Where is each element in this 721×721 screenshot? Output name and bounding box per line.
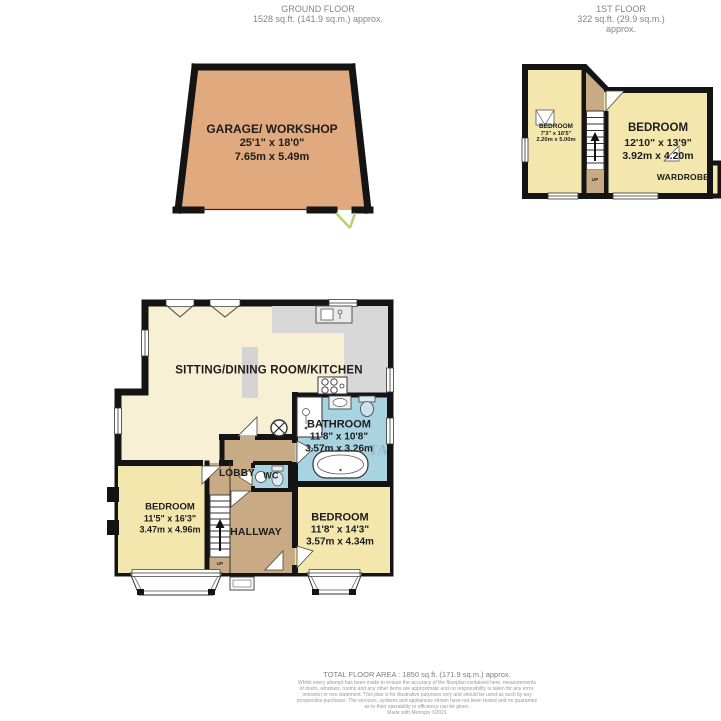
ground-floor-area: 1528 sq.ft. (141.9 sq.m.) approx.	[253, 14, 383, 24]
wardrobe-label: WARDROBE	[657, 173, 709, 182]
kitchen-sink-icon	[316, 306, 352, 323]
up-label-ground-floor: UP	[217, 562, 224, 567]
up-label-first-floor: UP	[592, 178, 599, 183]
room-dims-metric: 3.57m x 3.26m	[305, 445, 373, 455]
disclaimer-credit: Made with Metropix ©2021	[286, 711, 548, 717]
room-name: GARAGE/ WORKSHOP	[206, 123, 337, 135]
room-dims-imperial: 11'8" x 14'3"	[306, 526, 374, 536]
bathroom-sink-icon	[329, 396, 351, 409]
room-name: BEDROOM	[536, 124, 575, 131]
first-floor-title: 1ST FLOOR	[571, 4, 671, 14]
room-name: BEDROOM	[139, 502, 200, 512]
room-dims-metric: 2.20m x 5.00m	[536, 138, 575, 144]
bay-window-right	[307, 570, 362, 596]
ground-floor-title: GROUND FLOOR	[253, 4, 383, 14]
bedroom-small-label: BEDROOM 7'3" x 16'5" 2.20m x 5.00m	[536, 124, 575, 144]
porch-step	[230, 577, 254, 590]
bathtub-icon	[313, 451, 368, 478]
bedroom-right-label: BEDROOM 11'8" x 14'3" 3.57m x 4.34m	[306, 513, 374, 548]
garage-label: GARAGE/ WORKSHOP 25'1" x 18'0" 7.65m x 5…	[206, 123, 337, 163]
disclaimer: Whilst every attempt has been made to en…	[286, 681, 548, 716]
room-dims-imperial: 11'8" x 10'8"	[305, 433, 373, 443]
bedroom-large-label: BEDROOM 12'10" x 13'9" 3.92m x 4.20m	[622, 123, 693, 162]
bay-window-left	[130, 570, 222, 596]
hallway-label: HALLWAY	[230, 527, 282, 538]
lobby-label: LOBBY	[219, 469, 255, 479]
garage-door-swing-icon	[336, 213, 355, 228]
room-dims-metric: 3.57m x 4.34m	[306, 538, 374, 548]
room-dims-metric: 7.65m x 5.49m	[206, 152, 337, 163]
first-floor-area: 322 sq.ft. (29.9 sq.m.) approx.	[571, 14, 671, 34]
room-dims-imperial: 11'5" x 16'3"	[139, 514, 200, 523]
hob-icon	[318, 377, 347, 394]
watermark-text: TA	[368, 443, 388, 460]
room-name: BATHROOM	[305, 420, 373, 431]
total-floor-area: TOTAL FLOOR AREA : 1850 sq.ft. (171.9 sq…	[286, 670, 548, 679]
ceiling-light-icon	[271, 420, 287, 436]
floorplan-page: GROUND FLOOR 1528 sq.ft. (141.9 sq.m.) a…	[0, 0, 721, 721]
room-name: BEDROOM	[622, 123, 693, 135]
room-dims-metric: 3.92m x 4.20m	[622, 151, 693, 162]
room-name: BEDROOM	[306, 513, 374, 524]
room-dims-metric: 3.47m x 4.96m	[139, 525, 200, 534]
ground-floor-header: GROUND FLOOR 1528 sq.ft. (141.9 sq.m.) a…	[253, 4, 383, 24]
wc-label: WC	[263, 472, 278, 481]
room-dims-imperial: 12'10" x 13'9"	[622, 137, 693, 148]
room-dims-imperial: 25'1" x 18'0"	[206, 138, 337, 149]
sitting-room-label: SITTING/DINING ROOM/KITCHEN	[175, 365, 362, 377]
footer: TOTAL FLOOR AREA : 1850 sq.ft. (171.9 sq…	[286, 670, 548, 716]
floorplan-drawing	[0, 0, 721, 721]
toilet-icon	[359, 396, 375, 417]
bedroom-left-label: BEDROOM 11'5" x 16'3" 3.47m x 4.96m	[139, 502, 200, 534]
first-floor-header: 1ST FLOOR 322 sq.ft. (29.9 sq.m.) approx…	[571, 4, 671, 34]
bathroom-label: BATHROOM 11'8" x 10'8" 3.57m x 3.26m	[305, 420, 373, 455]
